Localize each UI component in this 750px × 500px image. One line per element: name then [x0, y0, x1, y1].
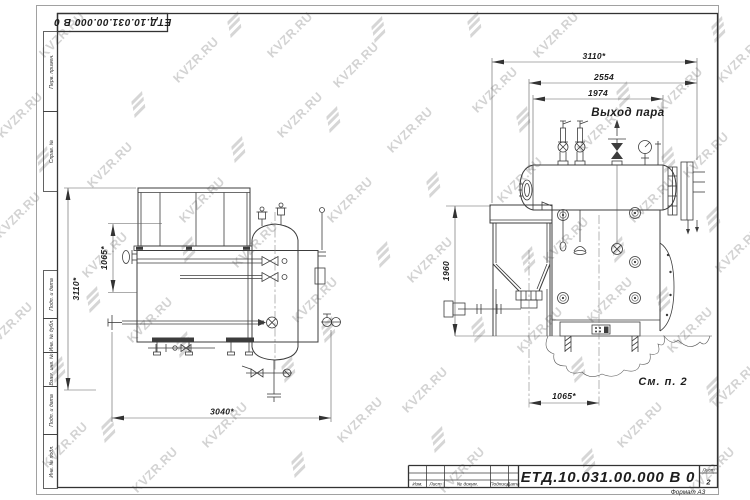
title-block-doc-number: ЕТД.10.031.00.000 В 0: [521, 469, 695, 486]
view-side-elevation: 3110* 2554 1974 1960 1065* Выход пара: [441, 51, 712, 408]
margin-label-inv-podl: Инв. № подл.: [49, 445, 55, 477]
see-note-label: См. п. 2: [638, 376, 687, 388]
foundation: [455, 336, 712, 377]
tb-col-list: Лист: [428, 482, 441, 488]
tb-col-docnum: № докум.: [457, 482, 478, 488]
view-front-elevation: 3110* 1065* 3040*: [64, 188, 341, 422]
margin-label-vzam: Взам. инв. №: [49, 353, 55, 385]
margin-label-sprav: Справ. №: [49, 139, 55, 163]
railing: [134, 188, 252, 251]
margin-label-perv: Перв. примен.: [49, 54, 55, 88]
drawing-canvas: ЕТД.10.031.00.000 В 0 Перв. примен. Спра…: [0, 0, 750, 500]
tb-sheet-label: Лист: [701, 468, 714, 474]
dim-drum-shell: 1974: [588, 88, 608, 98]
dim-right-height: 1960: [441, 261, 451, 281]
steam-valve-and-gauges: [608, 139, 661, 255]
title-block: Изм. Лист № докум. Подпись Дата ЕТД.10.0…: [409, 466, 718, 497]
steam-outlet-callout: Выход пара: [591, 107, 665, 136]
margin-label-inv-dubl: Инв. № дубл.: [49, 320, 55, 352]
dim-left-upper: 1065*: [99, 246, 109, 270]
tb-sheet-number: 2: [705, 478, 711, 487]
tb-col-data: Дата: [506, 482, 520, 488]
format-label: Формат А3: [671, 489, 706, 496]
boiler-body-front: [108, 250, 318, 355]
margin-labels: Перв. примен. Справ. № Подп. и дата Инв.…: [49, 54, 55, 477]
tb-col-izm: Изм.: [412, 482, 422, 488]
dim-right-overall: 3110*: [582, 51, 605, 61]
margin-label-podp2: Подп. и дата: [49, 394, 55, 427]
furnace-body: [552, 205, 674, 336]
dim-left-width: 3040*: [210, 407, 234, 417]
dim-drum-total: 2554: [593, 72, 614, 82]
margin-label-podp1: Подп. и дата: [49, 278, 55, 311]
dim-left-height: 3110*: [71, 277, 81, 300]
steam-drum: [519, 165, 677, 210]
steam-outlet-label: Выход пара: [591, 107, 665, 119]
dimensions-right-view: 3110* 2554 1974 1960 1065*: [441, 51, 697, 403]
dim-axis-spacing: 1065*: [552, 391, 576, 401]
fuel-hopper: [444, 205, 552, 336]
safety-valves: [558, 121, 588, 255]
drawing-sheet: KVZR.RUKVZR.RUKVZR.RUKVZR.RUKVZR.RUKVZR.…: [0, 0, 750, 500]
dimensions-left-view: 3110* 1065* 3040*: [64, 188, 331, 422]
top-stamp-doc-number: ЕТД.10.031.00.000 В 0: [54, 16, 172, 27]
rear-fittings: [315, 208, 341, 327]
